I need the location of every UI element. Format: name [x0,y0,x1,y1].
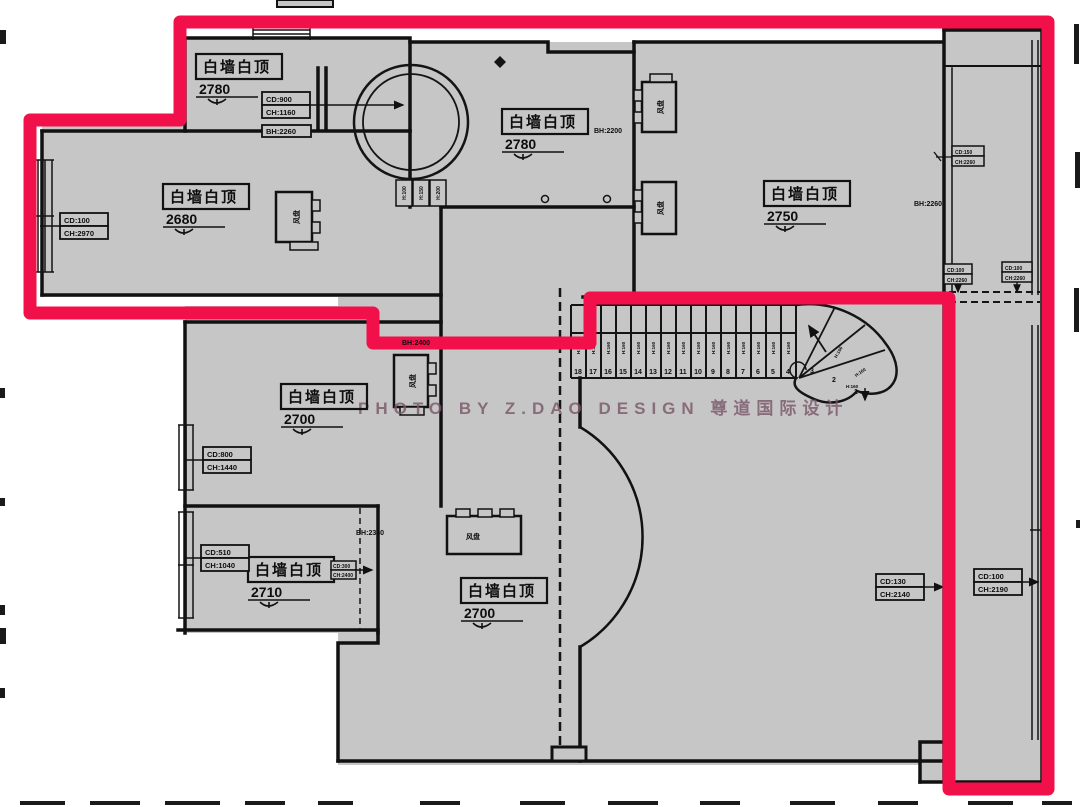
room-name: 白墙白顶 [468,582,536,600]
dim-line1: CD:100 [64,216,90,225]
riser-label: H:160 [756,341,761,354]
riser-label: H:160 [741,341,746,354]
step-number: 10 [694,369,702,376]
riser-label: H:160 [696,341,701,354]
step-number: 7 [741,369,745,376]
step-number: 2 [832,377,836,384]
riser-label: H:160 [726,341,731,354]
room-name: 白墙白顶 [255,561,323,579]
watermark-text: PHOTO BY Z.DAO DESIGN 尊道国际设计 [358,398,848,418]
dome-tag-label: H:100 [402,186,408,200]
dome-tag-label: H:200 [436,186,442,200]
fan-coil-label: 风盘 [466,532,480,541]
fan-coil-label: 风盘 [408,374,417,388]
step-number: 13 [649,369,657,376]
fan-coil-unit: 风盘 [447,509,521,554]
riser-label: H:160 [711,341,716,354]
room-name: 白墙白顶 [771,185,839,203]
beam-label: BH:2340 [356,530,384,537]
room-name: 白墙白顶 [509,113,577,131]
step-number: 5 [771,369,775,376]
bottom-wall-notch [552,747,586,761]
dim-line2: CH:2260 [1005,276,1025,282]
step-number: 4 [786,369,790,376]
room-ceiling-height: 2700 [464,605,495,621]
dim-line2: CH:2400 [333,573,353,579]
dim-line2: CH:2190 [978,585,1008,594]
beam-label: BH:2200 [594,128,622,135]
riser-label: H:160 [651,341,656,354]
fan-coil-label: 风盘 [656,201,665,215]
dim-line1: CD:150 [955,150,972,156]
riser-label: H:160 [846,384,859,389]
room-ceiling-height: 2700 [284,411,315,427]
room-ceiling-height: 2680 [166,211,197,227]
riser-label: H:160 [606,341,611,354]
step-number: 18 [574,369,582,376]
dim-line1: CD:100 [1005,266,1022,272]
dim-line1: CD:100 [978,572,1004,581]
dim-line2: CH:2970 [64,229,94,238]
dim-line2: CH:1040 [205,561,235,570]
riser-label: H:160 [681,341,686,354]
dim-line1: CD:900 [266,95,292,104]
step-number: 16 [604,369,612,376]
ceiling-plan-screenshot: H:100 H:150 H:200 18 17 16 15 14 13 12 1… [0,0,1080,807]
step-number: 12 [664,369,672,376]
fan-coil-label: 风盘 [292,210,301,224]
fan-coil-label: 风盘 [656,100,665,114]
dim-line1: CD:100 [947,268,964,274]
room-name: 白墙白顶 [288,388,356,406]
step-number: 8 [726,369,730,376]
beam-label: BH:2400 [402,340,430,347]
room-ceiling-height: 2780 [199,81,230,97]
step-number: 11 [679,369,687,376]
riser-label: H:160 [666,341,671,354]
dim-line1: CD:800 [207,450,233,459]
dim-line2: CH:1160 [266,108,296,117]
room-ceiling-height: 2710 [251,584,282,600]
step-number: 14 [634,369,642,376]
step-number: 15 [619,369,627,376]
floor-plan-drawing: H:100 H:150 H:200 18 17 16 15 14 13 12 1… [0,0,1080,807]
step-number: 9 [711,369,715,376]
dim-line2: CH:2260 [955,160,975,166]
dome-height-tags: H:100 H:150 H:200 [396,180,446,206]
step-number: 17 [589,369,597,376]
step-number: 3 [810,368,814,375]
room-ceiling-height: 2750 [767,208,798,224]
dim-line1: CD:300 [333,564,350,570]
dim-line2: CH:2140 [880,590,910,599]
step-number: 6 [756,369,760,376]
riser-label: H:160 [636,341,641,354]
dim-line2: CH:2260 [947,278,967,284]
riser-label: H:160 [786,341,791,354]
beam-label: BH:2260 [914,201,942,208]
beam-label: BH:2260 [266,127,296,136]
dim-line2: CH:1440 [207,463,237,472]
dim-line1: CD:510 [205,548,231,557]
riser-label: H:160 [771,341,776,354]
step-number: 1 [854,389,858,396]
riser-label: H:160 [621,341,626,354]
dim-line1: CD:130 [880,577,906,586]
dome-tag-label: H:150 [419,186,425,200]
room-name: 白墙白顶 [170,188,238,206]
room-name: 白墙白顶 [203,58,271,76]
room-ceiling-height: 2780 [505,136,536,152]
